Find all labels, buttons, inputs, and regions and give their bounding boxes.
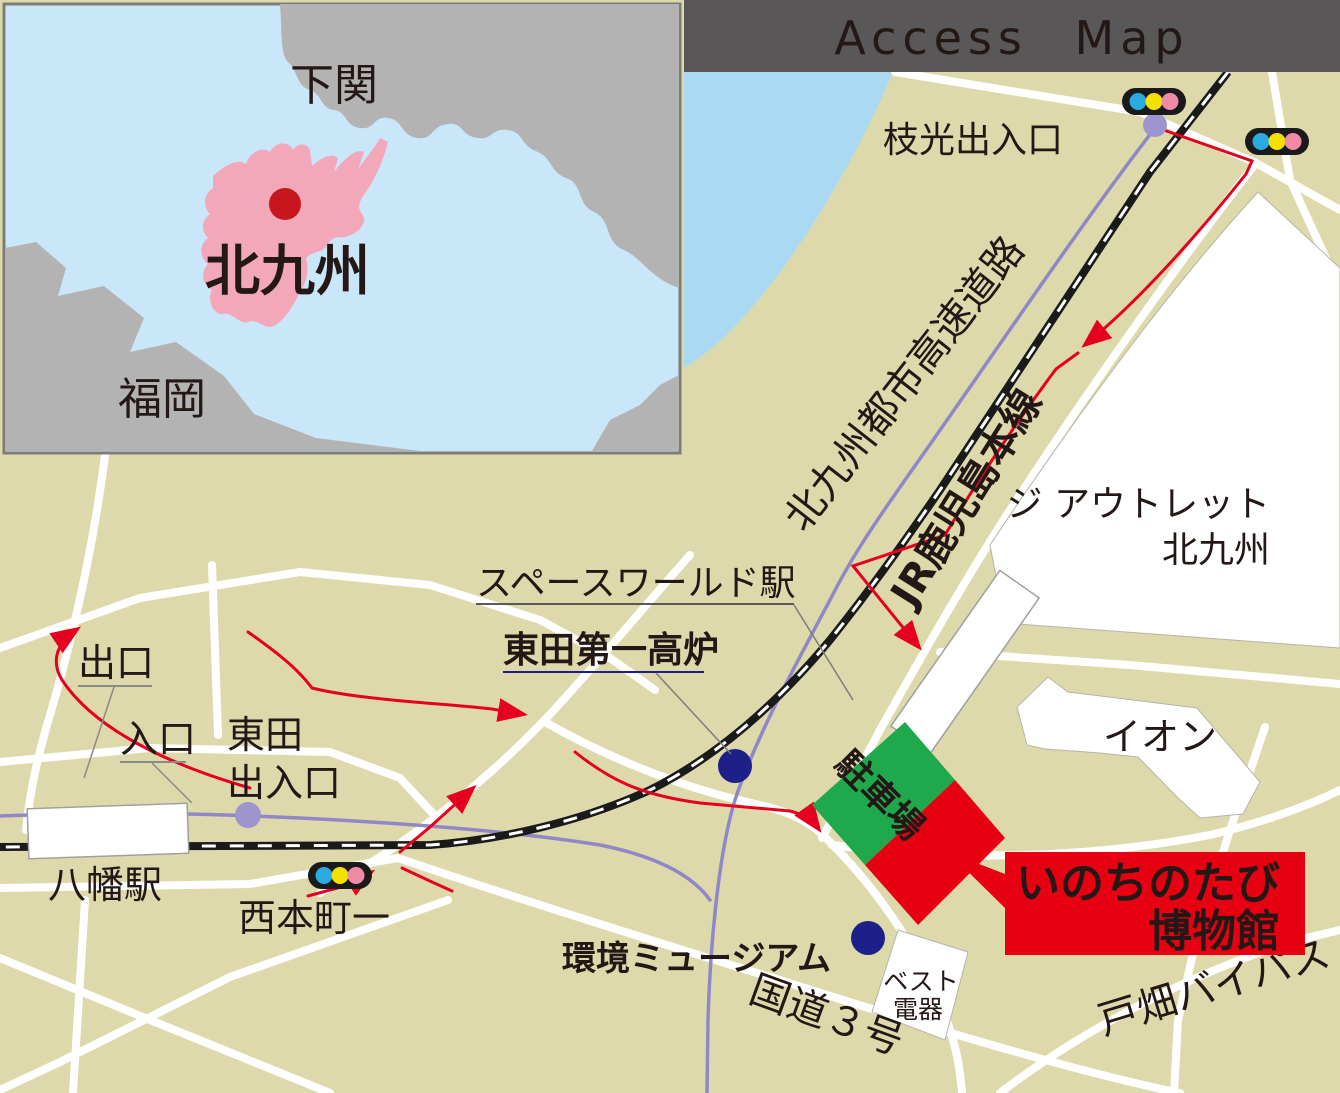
- traffic-light-outlet: [1245, 128, 1309, 155]
- yahata-station-building: [27, 803, 189, 859]
- higashida-ic-dot: [235, 802, 261, 828]
- nishihonmachi-label: 西本町一: [238, 896, 390, 940]
- blast-furnace-label: 東田第一高炉: [503, 630, 719, 671]
- banner-title: Access Map: [834, 11, 1189, 65]
- signal-yellow-icon: [1146, 93, 1163, 110]
- env-museum-label: 環境ミュージアム: [562, 939, 831, 979]
- signal-blue-icon: [1253, 133, 1270, 150]
- signal-pink-icon: [1162, 93, 1179, 110]
- best-denki-label-line2: 電器: [893, 995, 943, 1024]
- museum-label-line1: いのちのたび: [1016, 858, 1280, 909]
- edamitsu-ic-label: 枝光出入口: [883, 120, 1063, 161]
- signal-yellow-icon: [332, 867, 349, 884]
- traffic-light-nishihonmachi: [308, 862, 372, 889]
- higashida-ic-label-line2: 出入口: [227, 761, 341, 805]
- inset-locator-map: 下関 北九州 福岡: [4, 4, 680, 453]
- yahata-station-label: 八幡駅: [48, 863, 162, 907]
- inset-fukuoka-label: 福岡: [118, 374, 206, 425]
- outlet-label-line1: ジ アウトレット: [1007, 484, 1270, 525]
- signal-pink-icon: [348, 867, 365, 884]
- access-map: 駐車場 枝光出入口 北九州都市高速道路 JR鹿児島本線 ジ アウトレット 北: [0, 0, 1340, 1093]
- signal-yellow-icon: [1269, 133, 1286, 150]
- title-banner: Access Map: [684, 0, 1340, 72]
- entrance-label: 入口: [120, 717, 196, 761]
- aeon-label: イオン: [1103, 715, 1217, 759]
- inset-kitakyushu-label: 北九州: [205, 239, 370, 303]
- spaceworld-station-label: スペースワールド駅: [476, 563, 796, 604]
- blast-furnace-dot: [718, 749, 752, 783]
- signal-pink-icon: [1285, 133, 1302, 150]
- higashida-ic-label-line1: 東田: [227, 713, 303, 757]
- outlet-label-line2: 北九州: [1162, 530, 1270, 571]
- museum-label-line2: 博物館: [1148, 906, 1280, 957]
- signal-blue-icon: [316, 867, 333, 884]
- exit-label: 出口: [78, 641, 154, 685]
- edamitsu-ic-dot: [1143, 113, 1167, 137]
- traffic-light-edamitsu: [1122, 88, 1186, 115]
- env-museum-dot: [851, 921, 885, 955]
- inset-city-dot: [269, 188, 301, 220]
- best-denki-label-line1: ベスト: [883, 967, 959, 996]
- access-map-page: 駐車場 枝光出入口 北九州都市高速道路 JR鹿児島本線 ジ アウトレット 北: [0, 0, 1340, 1093]
- signal-blue-icon: [1130, 93, 1147, 110]
- inset-shimonoseki-label: 下関: [290, 60, 378, 111]
